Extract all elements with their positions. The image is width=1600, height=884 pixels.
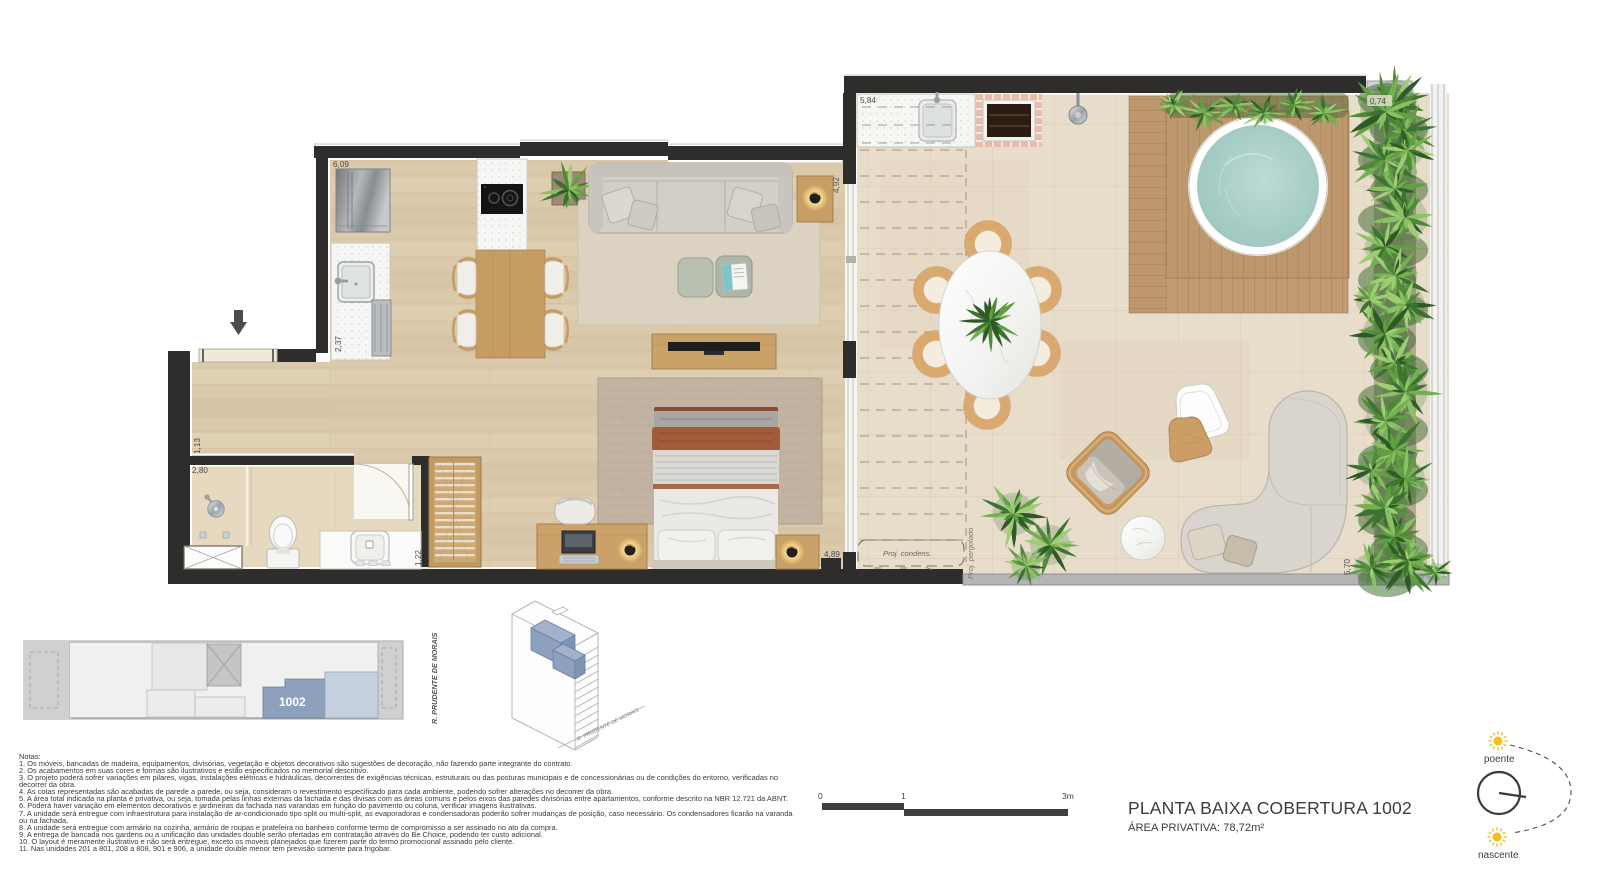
svg-text:1,13: 1,13 [193,438,202,454]
svg-text:5,70: 5,70 [1343,559,1352,575]
svg-text:1: 1 [901,791,906,801]
svg-text:1002: 1002 [279,695,306,709]
svg-text:ÁREA PRIVATIVA: 78,72m²: ÁREA PRIVATIVA: 78,72m² [1128,821,1264,834]
svg-text:3m: 3m [1062,791,1074,801]
svg-text:Proj. condens.: Proj. condens. [883,549,932,558]
svg-text:Proj. pergolado: Proj. pergolado [966,527,975,579]
svg-text:4,89: 4,89 [824,550,840,559]
svg-text:nascente: nascente [1478,850,1519,861]
svg-text:6,09: 6,09 [333,160,349,169]
svg-text:1,22: 1,22 [414,550,423,566]
svg-text:2,80: 2,80 [192,466,208,475]
svg-text:5,84: 5,84 [860,96,876,105]
svg-text:PLANTA BAIXA COBERTURA 1002: PLANTA BAIXA COBERTURA 1002 [1128,798,1412,818]
svg-text:4,92: 4,92 [832,177,841,193]
svg-text:poente: poente [1484,754,1515,765]
svg-text:R. PRUDENTE DE MORAIS: R. PRUDENTE DE MORAIS [430,632,439,724]
svg-text:0,74: 0,74 [1370,97,1386,106]
svg-text:2,37: 2,37 [334,336,343,352]
